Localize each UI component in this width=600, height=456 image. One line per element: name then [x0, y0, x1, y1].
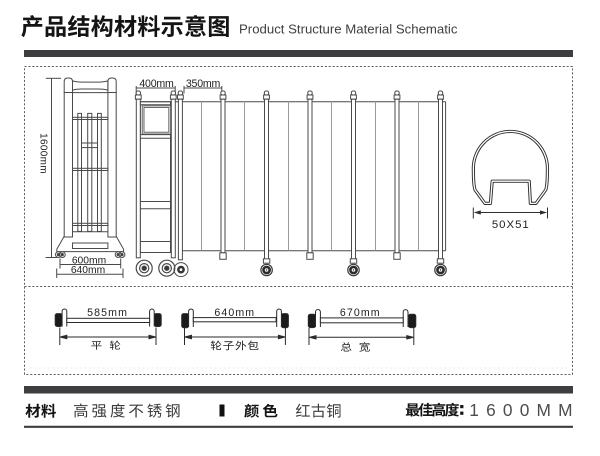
svg-text:Product Structure Material Sch: Product Structure Material Schematic: [239, 21, 458, 36]
svg-text:350mm: 350mm: [186, 78, 221, 90]
svg-text:670mm: 670mm: [340, 307, 381, 319]
svg-text:1600mm: 1600mm: [38, 133, 49, 174]
svg-text:50X51: 50X51: [492, 219, 530, 231]
svg-text:1600MM: 1600MM: [469, 400, 579, 420]
svg-text:640mm: 640mm: [214, 307, 255, 319]
svg-text:400mm: 400mm: [139, 78, 174, 90]
svg-text:640mm: 640mm: [71, 265, 105, 276]
svg-text:585mm: 585mm: [87, 307, 128, 319]
